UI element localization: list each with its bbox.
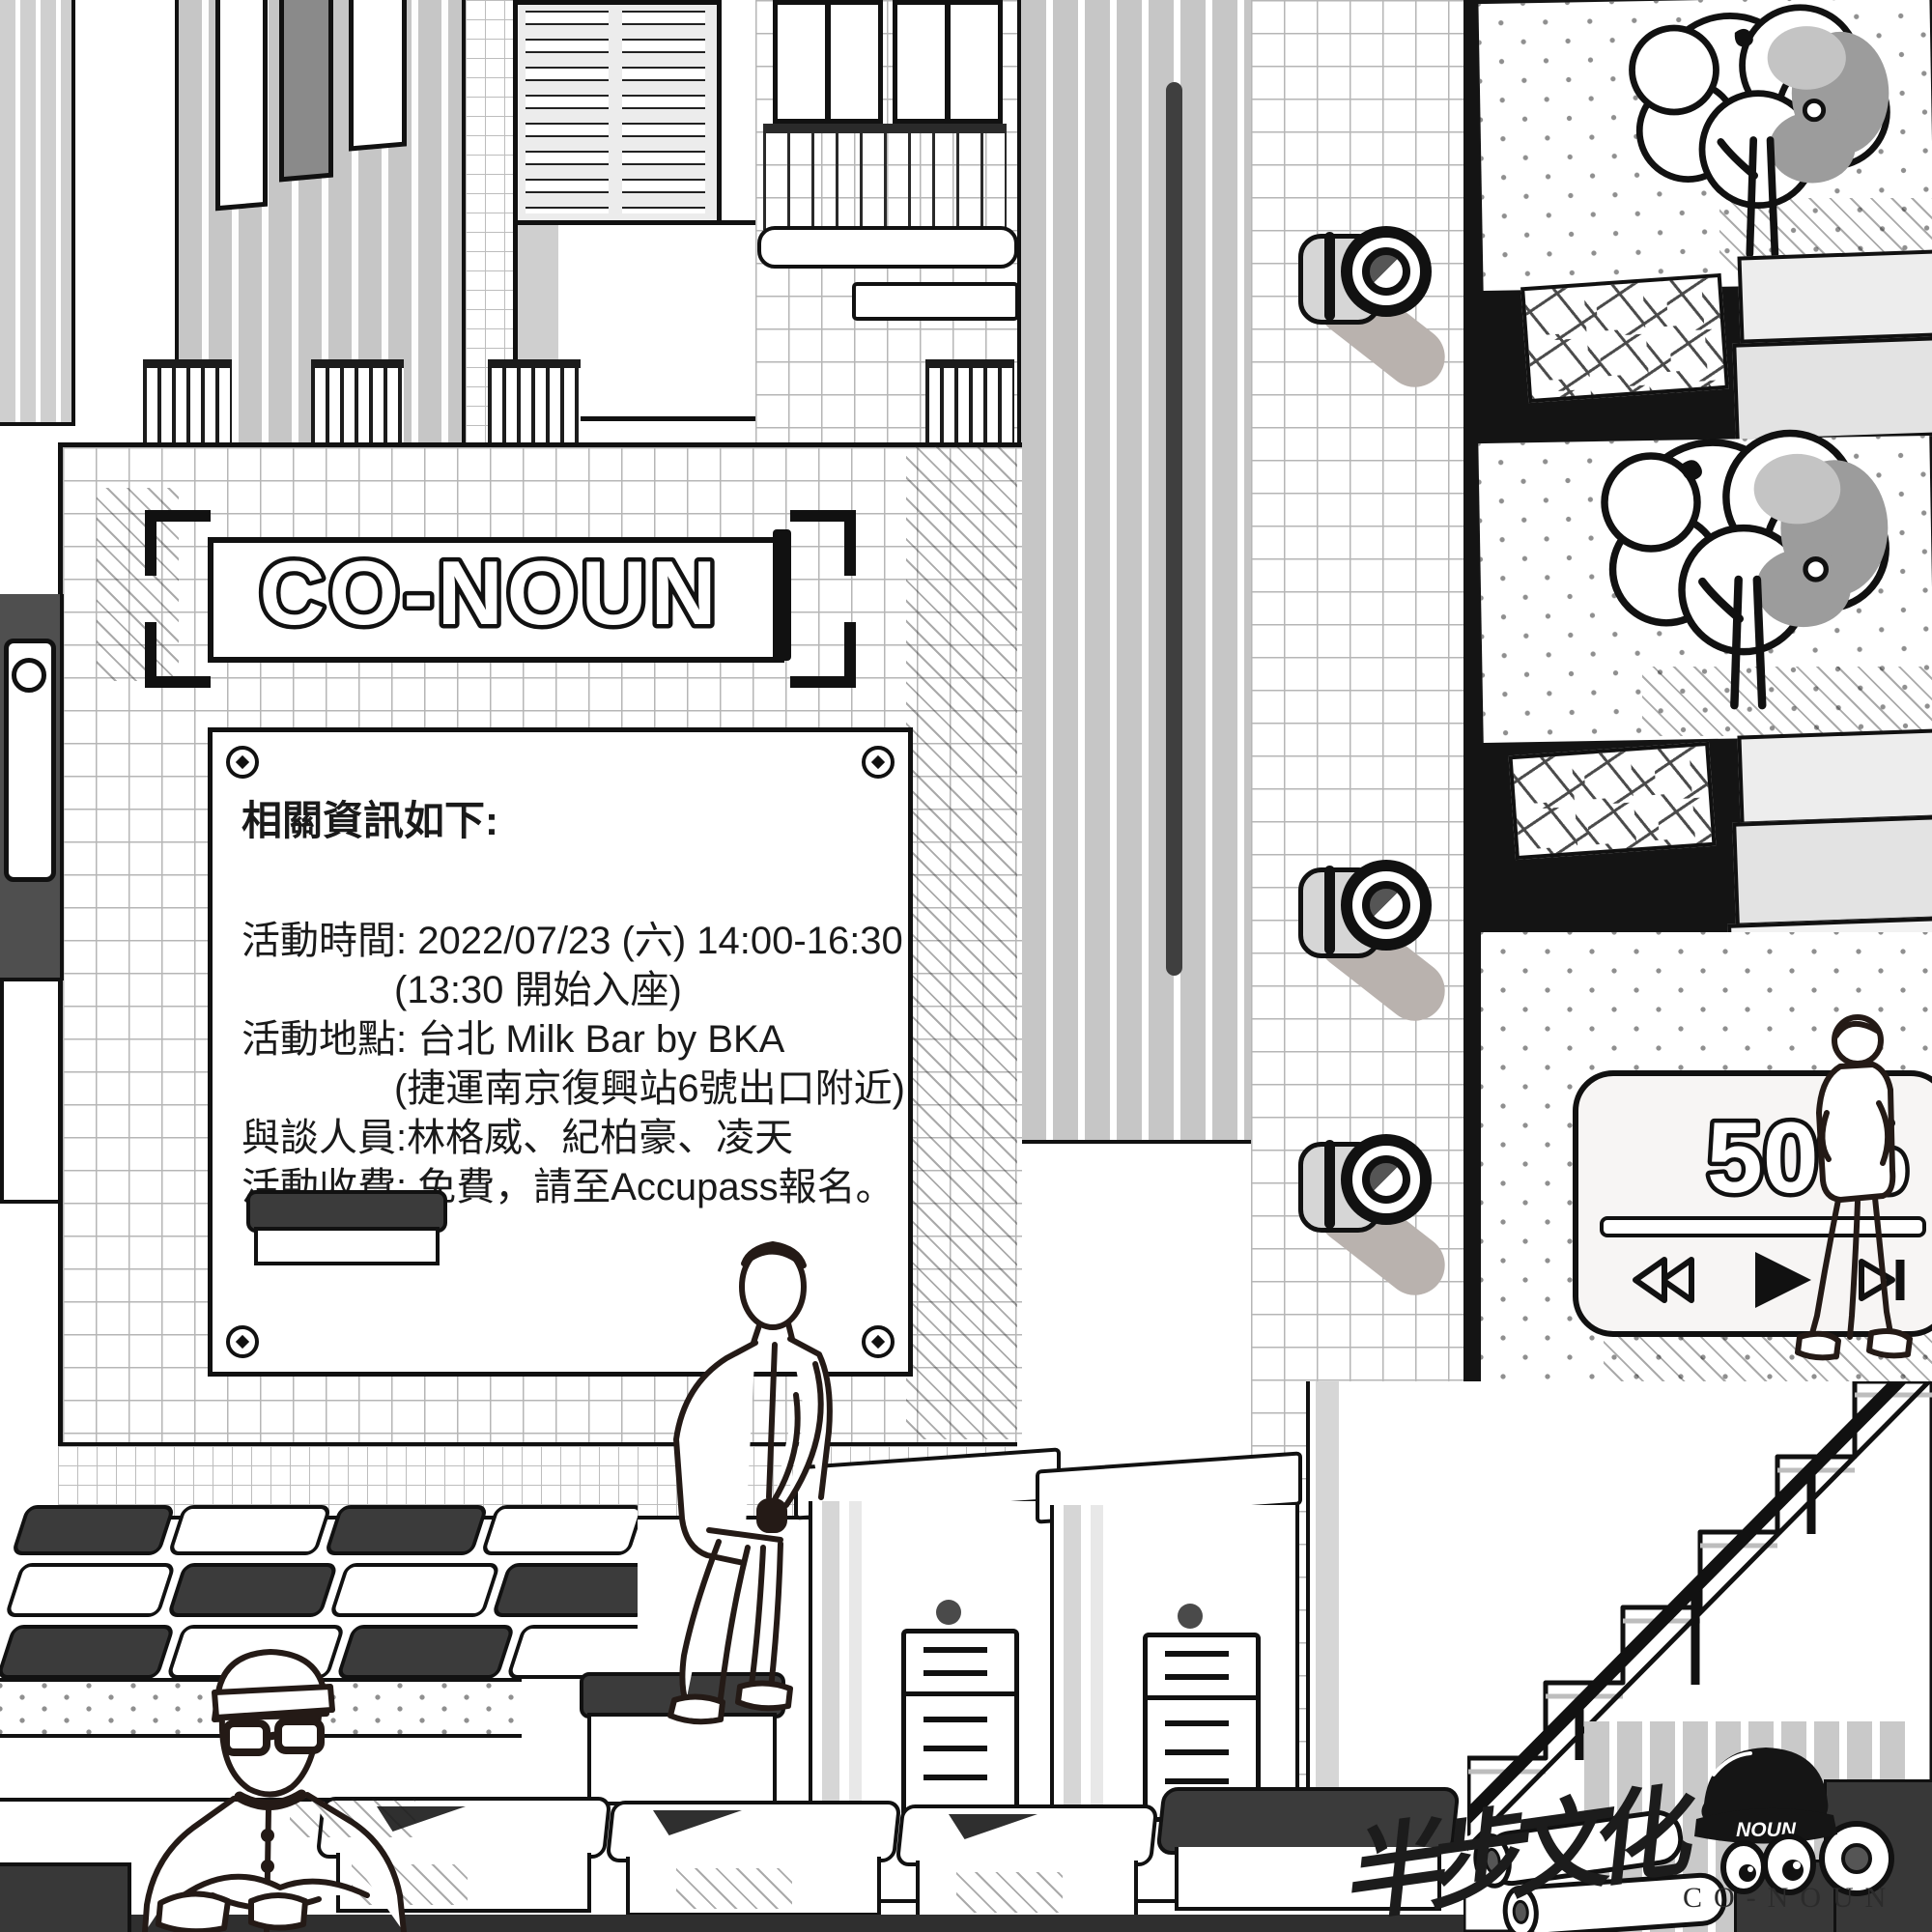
sign-bracket-bl: [145, 622, 211, 688]
left-door-ring: [12, 658, 46, 693]
info-heading: 相關資訊如下:: [241, 788, 884, 847]
sign-bracket-br: [790, 622, 856, 688]
left-dark-panel: [0, 594, 64, 980]
info-line-venue: 活動地點: 台北 Milk Bar by BKA: [241, 1015, 884, 1065]
building-louvre: [513, 0, 722, 230]
tree-illustration-1: [1584, 0, 1932, 280]
comic-strip: 50%: [1463, 0, 1932, 1381]
planter-box: [1520, 273, 1729, 403]
louvre-slats: [622, 11, 705, 213]
dark-corner-slab: [0, 1862, 131, 1932]
gray-ledge: [1732, 815, 1932, 926]
left-white-box: [0, 978, 62, 1204]
window-pane: [893, 0, 1003, 124]
conoun-signboard: CO-NOUN: [208, 537, 784, 663]
table: [898, 1804, 1159, 1930]
wall-bolt: [1298, 858, 1453, 966]
tree-illustration-2: [1555, 425, 1932, 734]
walking-person-illustration: [1782, 997, 1932, 1383]
gray-ledge: [1737, 728, 1932, 825]
window-pane: [773, 0, 883, 124]
tower-window: [215, 0, 268, 211]
striped-column: [1017, 0, 1259, 1144]
balcony-railing: [763, 124, 1007, 230]
wall-ledge: [852, 282, 1019, 321]
sitting-person-illustration: [126, 1642, 444, 1932]
gray-ledge: [1737, 249, 1932, 343]
panel-screw: [226, 746, 259, 779]
louvre-slats: [526, 11, 609, 213]
sign-title: CO-NOUN: [259, 543, 720, 643]
balcony-slab: [757, 226, 1018, 269]
standing-person-illustration: [541, 1198, 947, 1739]
building-left-panel: [0, 0, 75, 426]
sign-bracket-tr: [790, 510, 856, 576]
sign-bracket-tl: [145, 510, 211, 576]
planter-box: [1508, 742, 1716, 860]
column-dark-bar: [1166, 82, 1182, 976]
info-line-panelists: 與談人員:林格威、紀柏豪、凌天: [241, 1114, 884, 1163]
panel-screw: [226, 1325, 259, 1358]
machine-indicator-dot: [1178, 1604, 1203, 1629]
rewind-icon[interactable]: [1635, 1260, 1691, 1300]
info-line-time: 活動時間: 2022/07/23 (六) 14:00-16:30: [241, 917, 884, 966]
sign-title-art: CO-NOUN: [213, 543, 767, 645]
floating-step-side: [254, 1227, 440, 1265]
table: [609, 1801, 898, 1926]
info-line-exit: (捷運南京復興站6號出口附近): [241, 1065, 884, 1114]
tower-window-dark: [279, 0, 333, 182]
panel-screw: [862, 746, 895, 779]
tower-window: [349, 0, 407, 152]
wall-bolt: [1298, 224, 1453, 332]
info-line-seating: (13:30 開始入座): [241, 966, 884, 1015]
sign-side-bar: [773, 529, 791, 661]
bench-hatch: [290, 1799, 415, 1837]
wall-bolt: [1298, 1132, 1453, 1240]
event-poster: CO-NOUN 相關資訊如下: 活動時間: 2022/07/23 (六) 14:…: [0, 0, 1932, 1932]
